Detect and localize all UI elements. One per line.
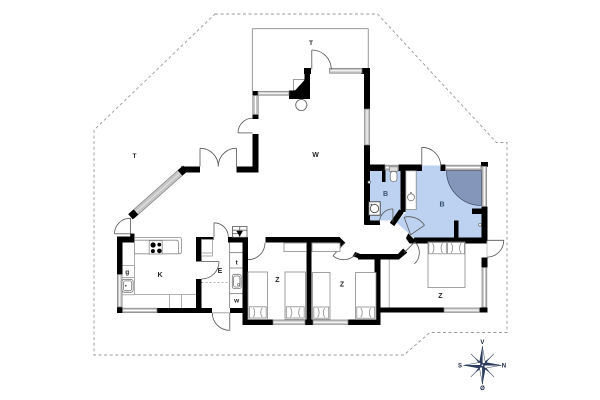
svg-text:B: B	[383, 191, 388, 198]
svg-text:T: T	[309, 40, 313, 47]
svg-text:K: K	[157, 272, 162, 279]
svg-text:w: w	[233, 297, 240, 304]
svg-text:V: V	[480, 340, 484, 346]
svg-text:W: W	[312, 152, 319, 159]
svg-text:Z: Z	[438, 293, 443, 300]
svg-text:B: B	[439, 201, 444, 208]
svg-text:g: g	[125, 269, 129, 276]
svg-text:Ø: Ø	[480, 386, 485, 392]
svg-text:S: S	[458, 364, 462, 370]
svg-text:Z: Z	[340, 281, 345, 288]
svg-text:T: T	[133, 153, 137, 160]
svg-text:N: N	[502, 364, 506, 370]
svg-text:t: t	[236, 259, 239, 266]
svg-text:E: E	[218, 268, 223, 275]
svg-text:Z: Z	[275, 277, 280, 284]
